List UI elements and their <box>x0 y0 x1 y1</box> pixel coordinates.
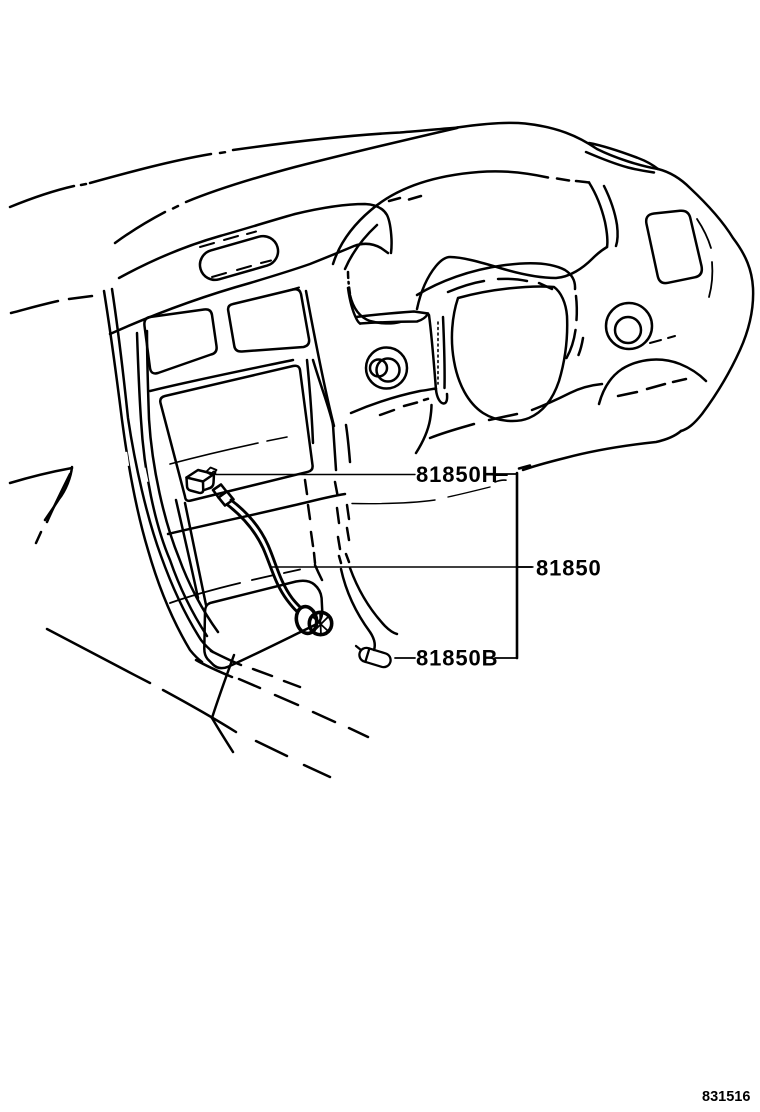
svg-text:81850H: 81850H <box>416 462 498 487</box>
svg-text:831516: 831516 <box>702 1089 750 1105</box>
svg-text:81850: 81850 <box>536 556 602 581</box>
svg-text:81850B: 81850B <box>416 646 498 671</box>
